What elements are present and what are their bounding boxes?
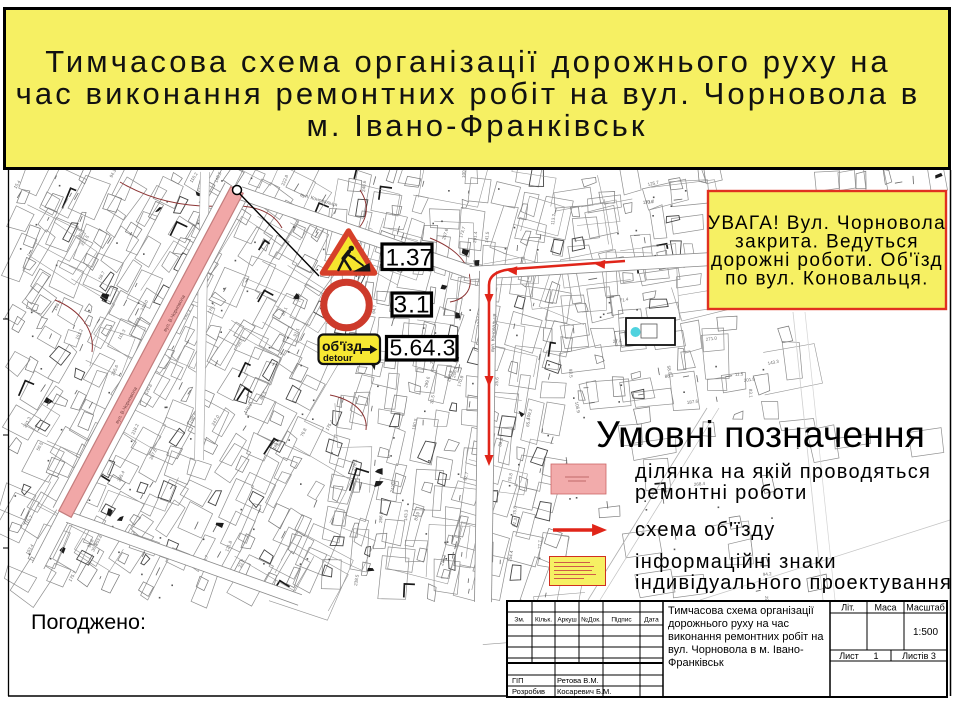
svg-text:об'їзд: об'їзд — [322, 338, 362, 354]
svg-text:Косаревич Б.М.: Косаревич Б.М. — [557, 687, 611, 696]
svg-text:266.8: 266.8 — [378, 511, 384, 523]
svg-text:дорожнього руху на час: дорожнього руху на час — [668, 618, 790, 630]
svg-text:індивідуального проектування: індивідуального проектування — [635, 572, 952, 594]
svg-text:Підпис: Підпис — [611, 616, 632, 624]
svg-text:Кільк.: Кільк. — [535, 616, 552, 624]
svg-text:11.5: 11.5 — [735, 371, 744, 377]
svg-text:ділянка на якій проводяться: ділянка на якій проводяться — [635, 461, 931, 483]
svg-text:Розробив: Розробив — [512, 687, 545, 696]
svg-text:ГІП: ГІП — [512, 676, 524, 685]
svg-text:м. Івано-Франківськ: м. Івано-Франківськ — [306, 108, 647, 143]
svg-text:83.1: 83.1 — [748, 389, 754, 399]
svg-text:інформаційні знаки: інформаційні знаки — [635, 551, 837, 573]
svg-text:Аркуш: Аркуш — [557, 617, 576, 624]
svg-text:1: 1 — [873, 651, 878, 661]
svg-text:Зм.: Зм. — [514, 617, 524, 624]
svg-text:Тимчасова схема організації до: Тимчасова схема організації дорожнього р… — [45, 44, 891, 79]
svg-text:5.64.3: 5.64.3 — [390, 335, 456, 361]
svg-text:1.37: 1.37 — [386, 245, 434, 272]
svg-text:вул. Чорновола в м. Івано-: вул. Чорновола в м. Івано- — [668, 644, 804, 656]
svg-text:77.7: 77.7 — [537, 540, 542, 550]
svg-text:Умовні позначення: Умовні позначення — [596, 413, 925, 455]
svg-text:Літ.: Літ. — [841, 603, 855, 613]
svg-text:Листів 3: Листів 3 — [902, 651, 936, 661]
svg-text:№Док.: №Док. — [581, 617, 601, 624]
svg-text:143.3: 143.3 — [403, 509, 409, 521]
svg-text:Франківськ: Франківськ — [668, 657, 724, 669]
svg-text:ремонтні роботи: ремонтні роботи — [635, 482, 808, 504]
svg-text:93.5: 93.5 — [568, 369, 574, 379]
svg-text:виконання ремонтних робіт на: виконання ремонтних робіт на — [668, 631, 824, 643]
svg-text:Тимчасова схема організації: Тимчасова схема організації — [668, 605, 814, 617]
svg-text:Масштаб: Масштаб — [906, 603, 945, 613]
svg-text:Дата: Дата — [644, 617, 659, 624]
svg-text:по вул. Коновальця.: по вул. Коновальця. — [725, 269, 929, 290]
svg-text:час виконання ремонтних робіт: час виконання ремонтних робіт на вул. Чо… — [16, 76, 921, 111]
svg-text:Маса: Маса — [874, 603, 896, 613]
svg-text:схема об'їзду: схема об'їзду — [635, 519, 776, 541]
svg-text:248.6: 248.6 — [361, 180, 367, 192]
svg-text:Погоджено:: Погоджено: — [31, 610, 146, 634]
svg-text:1:500: 1:500 — [913, 627, 938, 638]
svg-text:detour: detour — [323, 353, 353, 364]
svg-text:3.1: 3.1 — [394, 292, 431, 319]
svg-text:Лист: Лист — [839, 651, 859, 661]
svg-text:141.5: 141.5 — [484, 231, 490, 243]
svg-text:75.8: 75.8 — [512, 505, 518, 515]
svg-text:Ретова В.М.: Ретова В.М. — [557, 676, 599, 685]
